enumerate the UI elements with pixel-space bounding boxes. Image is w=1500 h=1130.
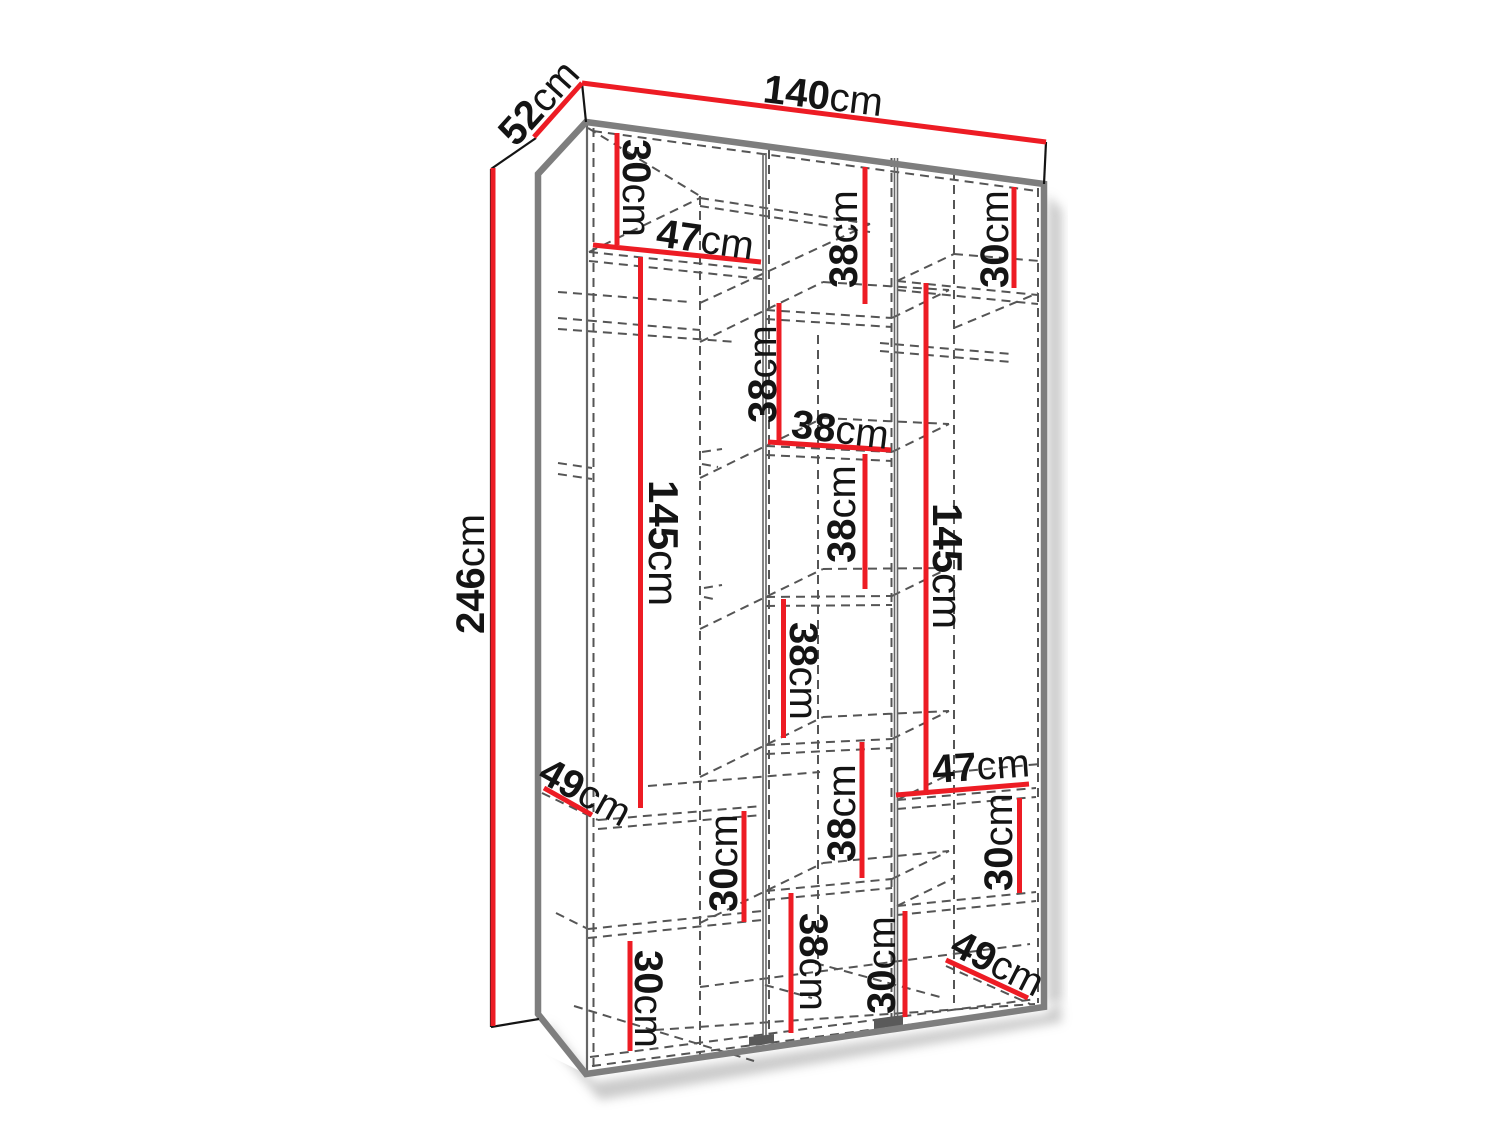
svg-text:38cm: 38cm: [741, 325, 785, 423]
svg-text:30cm: 30cm: [860, 916, 904, 1014]
svg-text:38cm: 38cm: [822, 190, 866, 288]
svg-text:30cm: 30cm: [977, 793, 1021, 891]
svg-text:145cm: 145cm: [924, 503, 971, 629]
svg-text:30cm: 30cm: [614, 139, 658, 237]
svg-text:30cm: 30cm: [973, 190, 1017, 288]
svg-text:246cm: 246cm: [449, 514, 493, 634]
svg-text:47cm: 47cm: [931, 741, 1032, 792]
svg-text:38cm: 38cm: [781, 622, 825, 720]
svg-text:30cm: 30cm: [702, 814, 746, 912]
svg-text:38cm: 38cm: [791, 913, 835, 1011]
svg-text:30cm: 30cm: [626, 950, 670, 1048]
svg-text:38cm: 38cm: [820, 465, 864, 563]
svg-text:145cm: 145cm: [640, 480, 687, 606]
svg-text:38cm: 38cm: [820, 764, 864, 862]
